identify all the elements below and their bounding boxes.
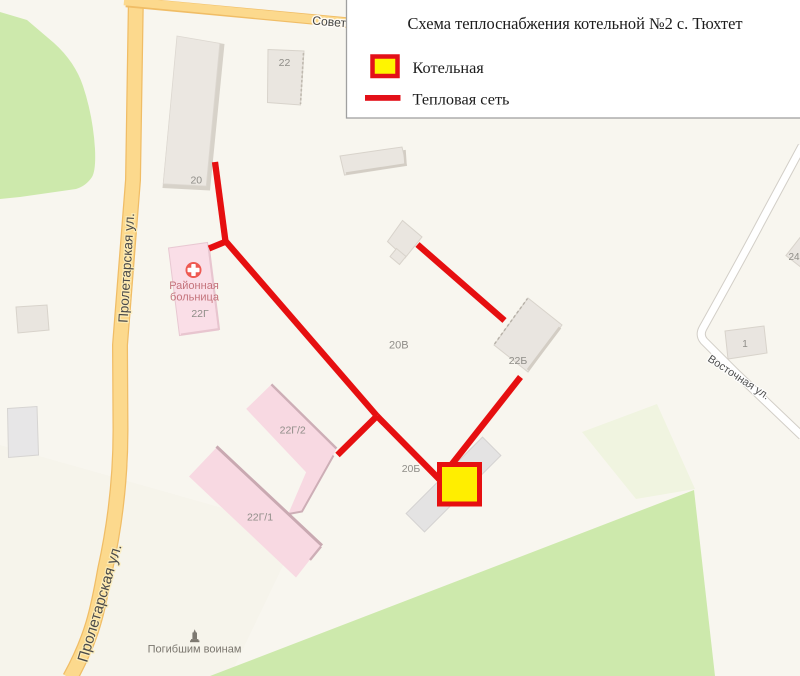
svg-text:Котельная: Котельная	[413, 58, 485, 77]
svg-text:24: 24	[788, 252, 800, 263]
svg-text:22Г/1: 22Г/1	[247, 512, 273, 524]
svg-text:22: 22	[279, 57, 291, 69]
svg-text:22Г/2: 22Г/2	[280, 425, 306, 437]
svg-text:Схема теплоснабжения котельной: Схема теплоснабжения котельной №2 с. Тюх…	[407, 14, 742, 33]
svg-text:22Б: 22Б	[509, 355, 528, 367]
svg-text:20: 20	[190, 175, 202, 187]
svg-text:Тепловая сеть: Тепловая сеть	[413, 90, 510, 109]
svg-text:Погибшим воинам: Погибшим воинам	[148, 644, 242, 656]
svg-text:1: 1	[742, 339, 748, 350]
svg-text:Районная: Районная	[169, 280, 219, 292]
svg-text:20В: 20В	[389, 340, 409, 352]
svg-text:22Г: 22Г	[191, 308, 209, 320]
svg-text:больница: больница	[170, 292, 220, 304]
svg-text:20Б: 20Б	[402, 463, 421, 475]
